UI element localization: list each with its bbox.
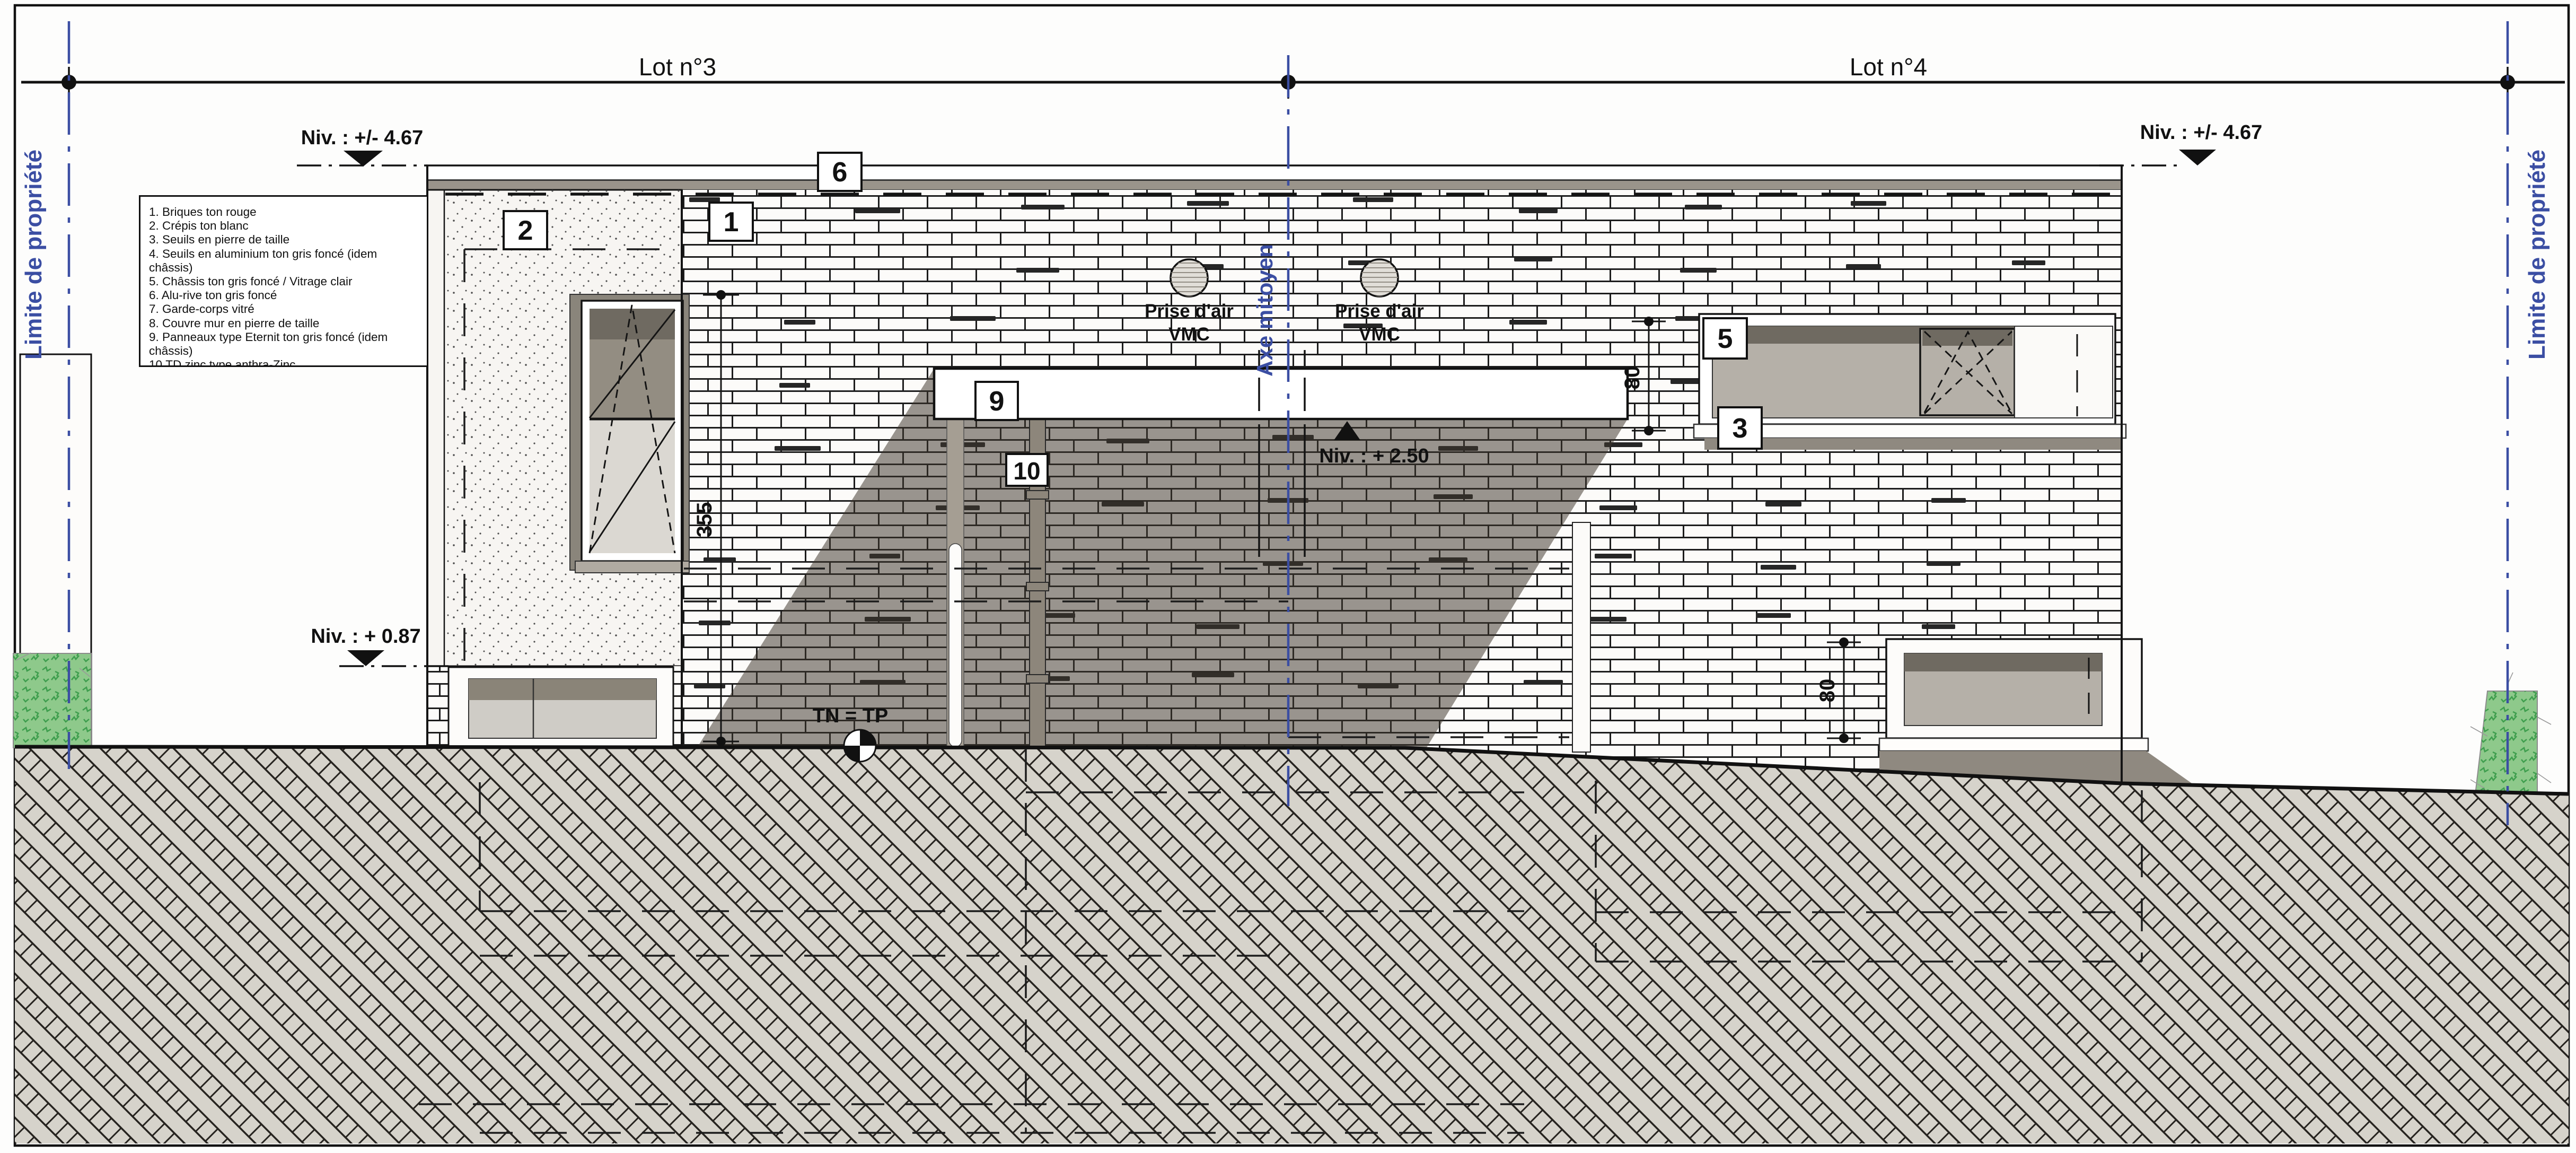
marker-2: 2 — [504, 211, 547, 249]
legend-item: 2. Crépis ton blanc — [149, 219, 421, 233]
dimension-80-lower-label: 80 — [1816, 679, 1839, 703]
marker-10: 10 — [1006, 454, 1048, 486]
roof-edge-band — [427, 165, 2122, 180]
tn-tp-label: TN = TP — [813, 705, 889, 727]
marker-1: 1 — [709, 203, 753, 241]
level-floor-label: Niv. : + 0.87 — [311, 625, 420, 648]
marker-9: 9 — [975, 382, 1018, 420]
level-roof-left-label: Niv. : +/- 4.67 — [301, 127, 424, 149]
property-label-right: Limite de propriété — [2524, 150, 2550, 360]
svg-text:5: 5 — [1718, 324, 1733, 354]
marker-3: 3 — [1718, 407, 1762, 449]
svg-text:2: 2 — [518, 215, 533, 246]
downpipe-white — [947, 419, 964, 747]
brick-pier-right — [673, 666, 682, 747]
light-pier — [1572, 522, 1590, 752]
legend-item: 10.TD zinc type anthra-Zinc — [149, 358, 421, 367]
brick-pier-left — [427, 666, 449, 747]
legend-item: 3. Seuils en pierre de taille — [149, 233, 421, 247]
legend-box: 1. Briques ton rouge 2. Crépis ton blanc… — [139, 195, 428, 367]
legend-item: 8. Couvre mur en pierre de taille — [149, 317, 421, 330]
legend-item: 9. Panneaux type Eternit ton gris foncé … — [149, 330, 421, 358]
lot3-label: Lot n°3 — [639, 53, 716, 81]
party-axis-label: Axe mitoyen — [1252, 244, 1277, 377]
legend-item: 4. Seuils en aluminium ton gris foncé (i… — [149, 247, 421, 275]
dimension-80-upper-label: 80 — [1621, 366, 1644, 390]
vmc-right-label1: Prise d'air — [1335, 301, 1424, 321]
window-upper-left — [570, 294, 689, 573]
window-sill — [1879, 738, 2148, 751]
marker-6: 6 — [818, 153, 861, 191]
legend-item: 1. Briques ton rouge — [149, 205, 421, 219]
elevation-drawing: Lot n°3 Lot n°4 — [0, 0, 2576, 1153]
ground-hatch — [15, 747, 2569, 1143]
level-canopy-label: Niv. : + 2.50 — [1319, 445, 1429, 467]
legend-item: 5. Châssis ton gris foncé / Vitrage clai… — [149, 275, 421, 289]
bush-left — [13, 653, 91, 748]
window-lower-left — [449, 667, 673, 747]
canopy — [934, 369, 1628, 419]
svg-text:9: 9 — [989, 386, 1005, 417]
marker-5: 5 — [1703, 318, 1747, 359]
vmc-right-label2: VMC — [1359, 324, 1400, 345]
svg-text:6: 6 — [832, 157, 848, 188]
roof-coping — [427, 180, 2122, 190]
dimension-355-label: 355 — [693, 502, 716, 538]
sill-shadow — [1704, 438, 2122, 450]
vmc-left-label1: Prise d'air — [1145, 301, 1234, 321]
solid-panel — [2015, 326, 2113, 418]
lot4-label: Lot n°4 — [1850, 53, 1927, 81]
svg-text:10: 10 — [1013, 457, 1040, 485]
vmc-left-label2: VMC — [1168, 324, 1210, 345]
legend-item: 6. Alu-rive ton gris foncé — [149, 289, 421, 302]
window-sill — [575, 561, 689, 573]
svg-text:3: 3 — [1733, 413, 1748, 444]
elevation-sheet: Lot n°3 Lot n°4 — [0, 0, 2576, 1153]
svg-text:1: 1 — [724, 207, 739, 238]
legend-item: 7. Garde-corps vitré — [149, 302, 421, 316]
property-label-left: Limite de propriété — [21, 150, 47, 360]
level-roof-right-label: Niv. : +/- 4.67 — [2140, 121, 2263, 144]
